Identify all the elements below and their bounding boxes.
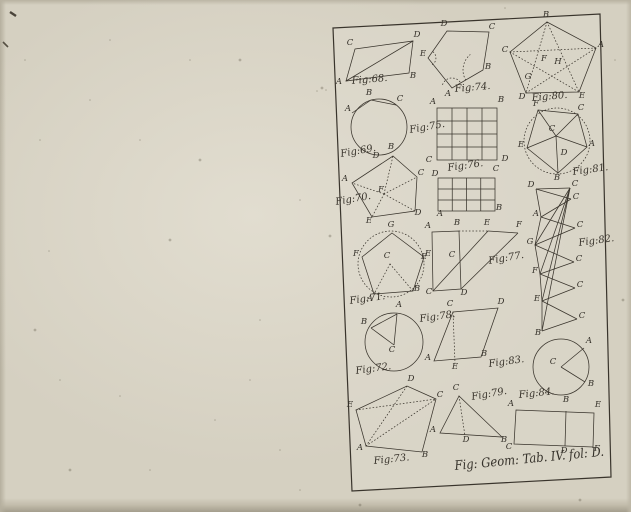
fig-81-letter-C: C (549, 124, 556, 134)
fig-79-letter-C: C (453, 383, 460, 393)
fig-73-letter-E: E (346, 400, 354, 410)
fig-72-letter-A: A (395, 300, 402, 310)
fig-76-letter-A: A (436, 209, 443, 219)
fig-71-letter-G: G (388, 220, 395, 230)
fig-82-letter-D: D (527, 180, 535, 190)
fig-80-letter-D: D (518, 92, 526, 102)
fig-80-letter-F: F (540, 54, 548, 64)
fig-77-letter-D: D (460, 288, 468, 298)
fig-84-letter-C: C (506, 442, 513, 452)
fig-75-letter-D: D (501, 154, 509, 164)
fig-77-letter-B: B (453, 218, 460, 228)
fig-82-letter-B: B (534, 328, 541, 338)
fig-83-letter-A: A (585, 336, 592, 346)
fig-82-letter-G: G (527, 237, 534, 247)
fig-70-letter-C: C (418, 168, 425, 178)
fig-82-letter-C: C (572, 179, 579, 189)
fig-81-letter-D: D (560, 148, 568, 158)
fig-80-letter-H: H (553, 57, 562, 67)
fig-83-letter-C: C (550, 357, 557, 367)
fig-82-letter-C: C (573, 192, 580, 202)
fig-82-letter-F: F (531, 266, 539, 276)
fig-77-letter-A: A (424, 221, 431, 231)
fig-84-letter-B: B (562, 395, 569, 405)
fig-81-letter-B: B (553, 173, 560, 183)
fig-69-letter-C: C (397, 94, 404, 104)
fig-78-letter-D: D (497, 297, 505, 307)
fig-78-letter-C: C (447, 299, 454, 309)
fig-75-letter-A: A (429, 97, 436, 107)
fig-77-letter-E: E (483, 218, 491, 228)
fig-82-letter-C: C (579, 311, 586, 321)
fig-79-letter-A: A (429, 425, 436, 435)
fig-84-letter-A: A (507, 399, 514, 409)
fig-79-letter-D: D (462, 435, 470, 445)
fig-70-letter-F: F (377, 185, 385, 195)
fig-75-letter-B: B (497, 95, 504, 105)
fig-76-letter-D: D (431, 169, 439, 179)
fig-77-letter-F: F (515, 220, 523, 230)
fig-73-letter-B: B (421, 450, 428, 460)
fig-81-letter-F: F (532, 99, 540, 109)
fig-82-letter-C: C (577, 280, 584, 290)
fig-68-letter-D: D (413, 30, 421, 40)
fig-84-letter-E: E (594, 400, 602, 410)
fig-78-letter-E: E (451, 362, 459, 372)
fig-80-letter-A: A (597, 40, 604, 50)
fig-74-letter-B: B (484, 62, 491, 72)
fig-81-letter-E: E (517, 140, 525, 150)
fig-80-letter-C: C (502, 45, 509, 55)
fig-78-letter-A: A (424, 353, 431, 363)
fig-71-letter-F: F (352, 249, 360, 259)
fig-74-letter-C: C (489, 22, 496, 32)
fig-80-letter-E: E (578, 91, 586, 101)
fig-72-letter-C: C (389, 345, 396, 355)
page-edge-mark (3, 42, 8, 47)
fig-73-letter-D: D (407, 374, 415, 384)
fig-82-letter-A: A (532, 209, 539, 219)
fig-82-letter-C: C (577, 220, 584, 230)
fig-82-letter-E: E (533, 294, 541, 304)
fig-73-letter-A: A (356, 443, 363, 453)
fig-72-letter-B: B (360, 317, 367, 327)
fig-83-letter-B: B (587, 379, 594, 389)
fig-77-letter-E: E (420, 252, 428, 262)
fig-74-letter-E: E (419, 49, 427, 59)
fig-77-letter-C: C (449, 250, 456, 260)
fig-74-letter-D: D (440, 19, 448, 29)
fig-70-letter-E: E (365, 216, 373, 226)
page-edge-mark (10, 12, 16, 16)
fig-73-letter-C: C (437, 390, 444, 400)
fig-70-letter-B: B (387, 142, 394, 152)
fig-69-letter-A: A (344, 104, 351, 114)
fig-70-letter-A: A (341, 174, 348, 184)
fig-81-letter-A: A (588, 139, 595, 149)
scanned-book-page: CDABFig:68.BCADFig:69.BCDEAFFig:70.GFECA… (0, 0, 631, 512)
engraving-plate: CDABFig:68.BCADFig:69.BCDEAFFig:70.GFECA… (0, 0, 631, 512)
fig-75-letter-C: C (426, 155, 433, 165)
fig-76-letter-C: C (493, 164, 500, 174)
fig-70-letter-D: D (414, 208, 422, 218)
fig-68-letter-C: C (347, 38, 354, 48)
fig-77-letter-C: C (426, 287, 433, 297)
fig-71-letter-B: B (413, 284, 420, 294)
fig-69-letter-B: B (365, 88, 372, 98)
fig-82-letter-C: C (576, 254, 583, 264)
fig-80-letter-G: G (525, 72, 532, 82)
fig-78-letter-B: B (480, 349, 487, 359)
fig-76-letter-B: B (495, 203, 502, 213)
fig-74-letter-A: A (444, 89, 451, 99)
fig-68-letter-A: A (335, 77, 342, 87)
fig-80-letter-B: B (542, 10, 549, 20)
fig-81-letter-C: C (578, 103, 585, 113)
fig-71-letter-C: C (384, 251, 391, 261)
fig-68-letter-B: B (409, 71, 416, 81)
